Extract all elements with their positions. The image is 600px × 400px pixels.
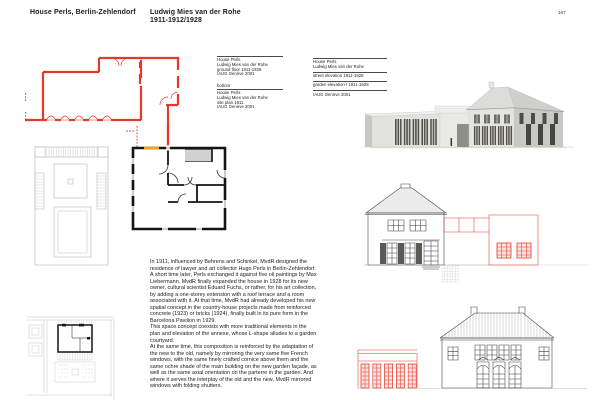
body-paragraph-3: At the same time, this composition is re…: [150, 344, 318, 390]
page-title-project: House Perls, Berlin-Zehlendorf: [30, 9, 136, 17]
caption-position-label: bottom: [217, 83, 230, 88]
garden-plan-detail-figure: [33, 143, 111, 271]
page-number: 167: [558, 10, 566, 15]
architect-name: Ludwig Mies van der Rohe: [150, 9, 241, 16]
site-plan-figure: [27, 313, 115, 400]
body-paragraph-1: In 1911, influenced by Behrens and Schin…: [150, 259, 318, 324]
model-rendering-figure: [362, 52, 588, 156]
project-dates: 1911-1912/1928: [150, 17, 202, 24]
caption-credit: IAUG Genève 2001: [217, 105, 283, 110]
garden-elevation-figure: [355, 300, 590, 400]
book-spread: House Perls, Berlin-Zehlendorf Ludwig Mi…: [0, 0, 600, 400]
caption-left-top: House Perls Ludwig Mies van der Rohe gro…: [217, 56, 283, 77]
page-title-architect: Ludwig Mies van der Rohe1911-1912/1928: [150, 9, 270, 26]
caption-left-bottom: House Perls Ludwig Mies van der Rohe sit…: [217, 89, 283, 110]
body-text: In 1911, influenced by Behrens and Schin…: [150, 259, 318, 390]
body-paragraph-2: This space concept coexists with more tr…: [150, 324, 318, 344]
street-elevation-figure: [362, 180, 590, 288]
ground-floor-plan-original-figure: [126, 125, 230, 231]
caption-credit: IAUG Genève 2001: [217, 72, 283, 77]
